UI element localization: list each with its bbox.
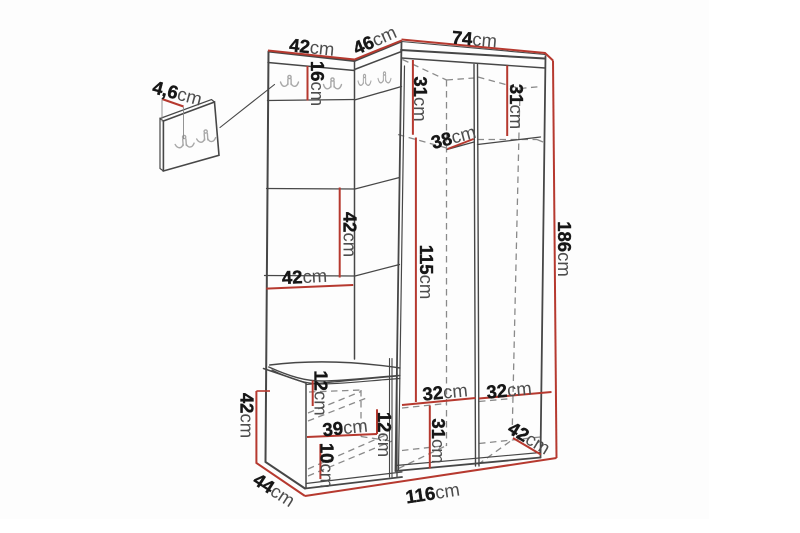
svg-text:42cm: 42cm <box>340 212 361 257</box>
svg-text:31cm: 31cm <box>428 418 449 463</box>
svg-text:115cm: 115cm <box>416 245 437 300</box>
svg-text:42cm: 42cm <box>281 264 327 287</box>
svg-text:31cm: 31cm <box>410 76 431 121</box>
svg-text:10cm: 10cm <box>317 443 338 488</box>
svg-text:32cm: 32cm <box>421 379 468 404</box>
svg-text:31cm: 31cm <box>506 84 527 129</box>
svg-text:12cm: 12cm <box>374 412 395 457</box>
svg-text:16cm: 16cm <box>308 61 329 106</box>
svg-text:186cm: 186cm <box>554 221 575 277</box>
svg-text:74cm: 74cm <box>451 26 498 51</box>
svg-text:32cm: 32cm <box>485 377 532 402</box>
svg-text:12cm: 12cm <box>311 370 332 415</box>
svg-text:42cm: 42cm <box>237 393 258 438</box>
